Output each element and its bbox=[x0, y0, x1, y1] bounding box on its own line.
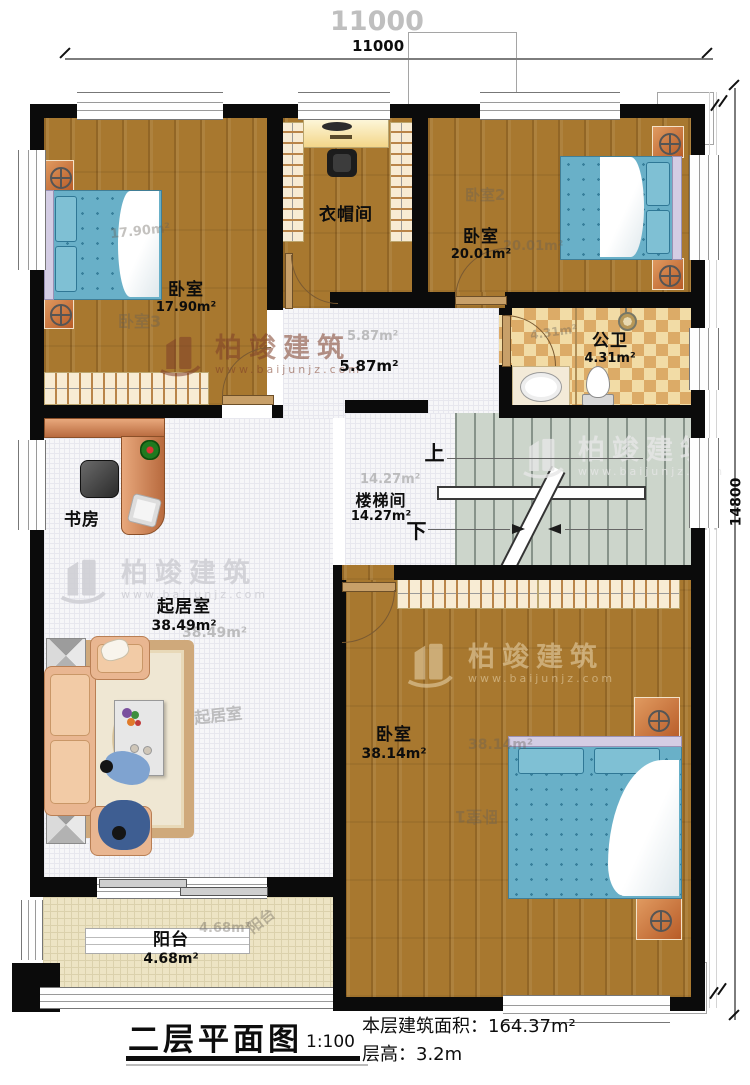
bedroom2-ghost-tag: 卧室2 bbox=[465, 184, 505, 205]
mirror bbox=[322, 122, 352, 131]
cloakroom-label: 衣帽间 bbox=[300, 206, 392, 226]
nightstand bbox=[634, 697, 680, 741]
sink bbox=[520, 372, 562, 402]
wall bbox=[30, 877, 97, 897]
wall bbox=[272, 405, 283, 418]
wall bbox=[394, 565, 705, 580]
pillow bbox=[55, 246, 77, 292]
bedroom3-door bbox=[222, 395, 274, 405]
wall bbox=[267, 877, 333, 897]
dimension-right: 14800 bbox=[728, 478, 744, 527]
wall bbox=[412, 104, 428, 292]
wall bbox=[333, 565, 342, 580]
window bbox=[689, 155, 719, 260]
wardrobe bbox=[390, 122, 413, 242]
hallway-label: 5.87m² bbox=[333, 358, 405, 375]
break-mark bbox=[717, 983, 727, 996]
living-ghost-tag: 起居室 bbox=[193, 700, 243, 729]
stair-down-line bbox=[565, 529, 643, 530]
balcony-rail bbox=[21, 900, 43, 960]
dimension-line-right bbox=[734, 88, 736, 1020]
stair-down-line bbox=[428, 529, 510, 530]
dimension-top-ghost: 11000 bbox=[330, 6, 424, 37]
shower-head-icon bbox=[618, 312, 637, 331]
lamp-icon bbox=[50, 167, 72, 189]
stair-up-line bbox=[447, 458, 643, 459]
pillow bbox=[646, 162, 670, 206]
balcony-label: 阳台4.68m² bbox=[136, 931, 206, 967]
stair-arrow-icon bbox=[512, 524, 525, 534]
bed-sheet bbox=[600, 157, 644, 257]
wall bbox=[30, 405, 222, 418]
pillow bbox=[646, 210, 670, 254]
cup-icon bbox=[143, 746, 152, 755]
wardrobe bbox=[44, 372, 209, 405]
window bbox=[77, 92, 223, 120]
lamp-icon bbox=[648, 710, 670, 732]
balcony-ghost-area: 4.68m² bbox=[199, 921, 250, 936]
window bbox=[18, 150, 46, 270]
drawing-title: 二层平面图 bbox=[128, 1014, 303, 1059]
dimension-top: 11000 bbox=[352, 37, 404, 55]
floor-plan: 11000 11000 14800 14800 柏竣建筑www.baijunjz… bbox=[0, 0, 750, 1085]
dimension-line-top bbox=[65, 58, 713, 60]
dim-tick bbox=[701, 47, 712, 58]
sliding-panel bbox=[99, 879, 187, 888]
pillow bbox=[55, 196, 77, 242]
wall bbox=[499, 365, 512, 405]
window bbox=[298, 92, 390, 120]
lamp-icon bbox=[650, 910, 672, 932]
break-mark bbox=[718, 95, 728, 108]
stair-down-label: 下 bbox=[404, 520, 430, 543]
title-underline-thin bbox=[126, 1064, 368, 1066]
sofa-cushion bbox=[50, 740, 90, 804]
wardrobe bbox=[538, 577, 680, 609]
hallway-opening bbox=[283, 405, 345, 418]
lamp-icon bbox=[50, 304, 72, 326]
window bbox=[480, 92, 620, 120]
bedroom1-ghost-tag: 卧室1 bbox=[455, 806, 498, 830]
plant-icon bbox=[140, 440, 160, 460]
bathroom-label: 公卫4.31m² bbox=[578, 332, 642, 366]
flower-bouquet-icon bbox=[122, 708, 132, 718]
wall bbox=[499, 308, 512, 315]
stair-up-label: 上 bbox=[422, 442, 448, 465]
window bbox=[18, 440, 46, 530]
title-underline bbox=[126, 1056, 360, 1061]
wall bbox=[345, 400, 428, 413]
sofa-cushion bbox=[50, 674, 90, 736]
person-head bbox=[112, 826, 126, 840]
wall bbox=[505, 292, 705, 308]
study-label: 书房 bbox=[52, 511, 112, 531]
lamp-icon bbox=[659, 265, 681, 287]
wall bbox=[223, 104, 298, 118]
bedroom1-label: 卧室38.14m² bbox=[352, 726, 436, 762]
nightstand bbox=[636, 898, 682, 940]
desk bbox=[44, 418, 165, 438]
floor-area-note: 本层建筑面积：164.37m² bbox=[362, 1012, 576, 1038]
bedroom1-ghost-area: 38.14m² bbox=[468, 737, 533, 753]
wall bbox=[670, 997, 705, 1011]
comb bbox=[330, 135, 352, 139]
bedroom2-label: 卧室20.01m² bbox=[440, 228, 522, 262]
drawing-scale: 1:100 bbox=[306, 1032, 355, 1052]
wall bbox=[390, 104, 480, 118]
toilet-bowl bbox=[586, 366, 610, 398]
floor-height-note: 层高：3.2m bbox=[362, 1040, 462, 1066]
wall bbox=[691, 528, 705, 1011]
wall bbox=[30, 530, 44, 897]
person-head bbox=[100, 760, 113, 773]
stair-arrow-icon bbox=[548, 524, 561, 534]
wall bbox=[30, 104, 44, 150]
stool-cushion bbox=[333, 154, 351, 172]
stairwell-ghost-area: 14.27m² bbox=[360, 472, 420, 487]
nightstand bbox=[652, 126, 684, 158]
wall bbox=[267, 104, 283, 310]
nightstand bbox=[44, 160, 74, 192]
lamp-icon bbox=[659, 133, 681, 155]
wall bbox=[691, 104, 705, 155]
bed-headboard bbox=[672, 156, 682, 260]
wall bbox=[333, 997, 503, 1011]
wall bbox=[499, 405, 705, 418]
balcony-rail bbox=[40, 987, 333, 1009]
bedroom3-label: 卧室17.90m² bbox=[146, 281, 226, 315]
nightstand bbox=[44, 297, 74, 329]
living-label: 起居室38.49m² bbox=[144, 598, 224, 634]
sliding-panel bbox=[180, 887, 268, 896]
wall bbox=[333, 580, 346, 1011]
office-chair bbox=[80, 460, 119, 498]
wardrobe bbox=[397, 577, 538, 609]
bed-headboard bbox=[508, 736, 682, 747]
dim-tick bbox=[59, 47, 70, 58]
nightstand bbox=[652, 258, 684, 290]
wall bbox=[330, 292, 455, 308]
window bbox=[689, 328, 719, 390]
window bbox=[689, 438, 719, 528]
bedroom1-door-threshold bbox=[342, 565, 394, 580]
hallway-ghost-area: 5.87m² bbox=[347, 329, 398, 344]
person bbox=[98, 800, 150, 850]
